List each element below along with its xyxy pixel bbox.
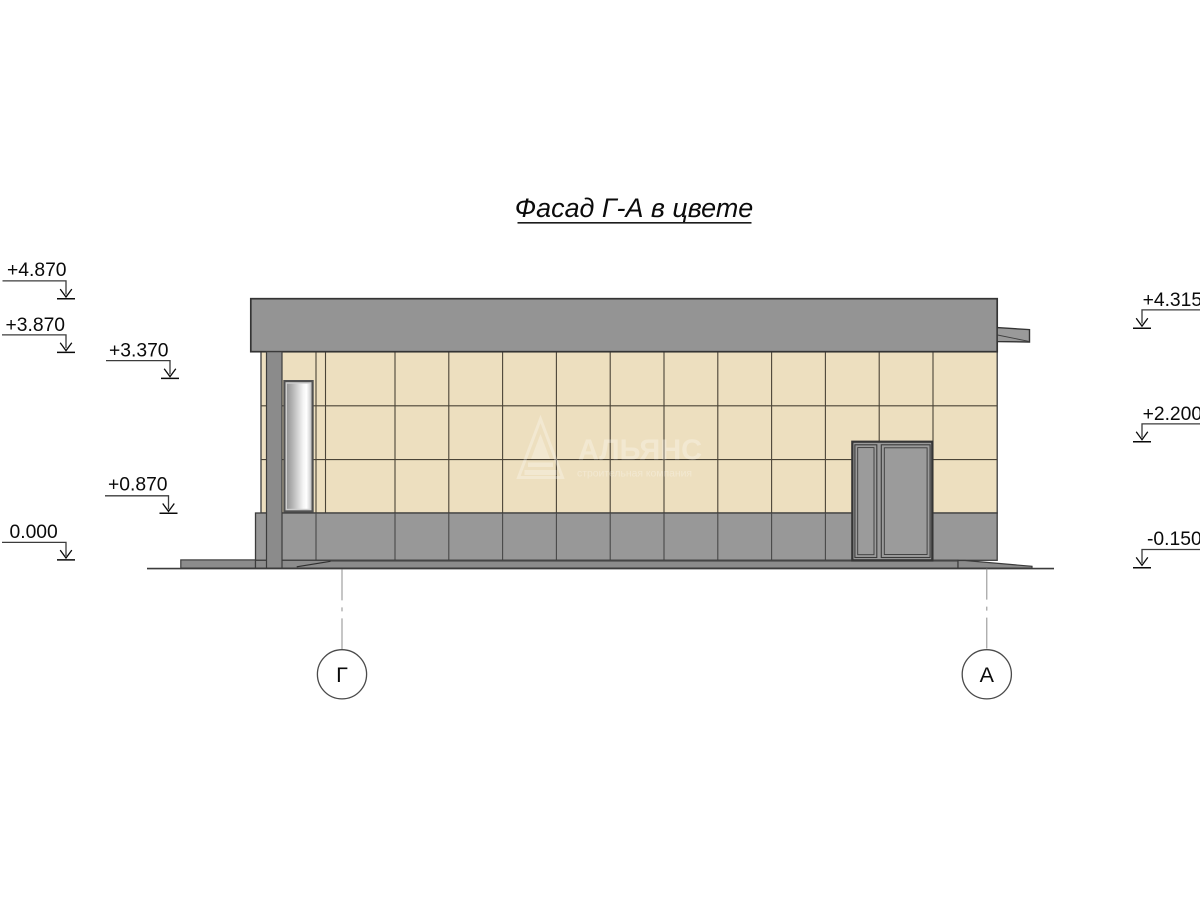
svg-text:Фасад Г-А в цвете: Фасад Г-А в цвете — [515, 193, 753, 223]
svg-text:-0.150: -0.150 — [1147, 529, 1200, 550]
svg-text:строительная компания: строительная компания — [577, 469, 692, 480]
svg-text:+0.870: +0.870 — [108, 475, 168, 496]
svg-text:Г: Г — [336, 663, 348, 687]
svg-text:+4.870: +4.870 — [7, 260, 67, 281]
svg-text:+4.315: +4.315 — [1143, 290, 1200, 311]
svg-text:А: А — [980, 663, 995, 687]
svg-text:+3.370: +3.370 — [109, 340, 169, 361]
svg-text:+2.200: +2.200 — [1143, 404, 1200, 425]
svg-text:АЛЬЯНС: АЛЬЯНС — [578, 435, 702, 467]
svg-text:+3.870: +3.870 — [6, 315, 66, 336]
svg-text:0.000: 0.000 — [10, 522, 58, 543]
